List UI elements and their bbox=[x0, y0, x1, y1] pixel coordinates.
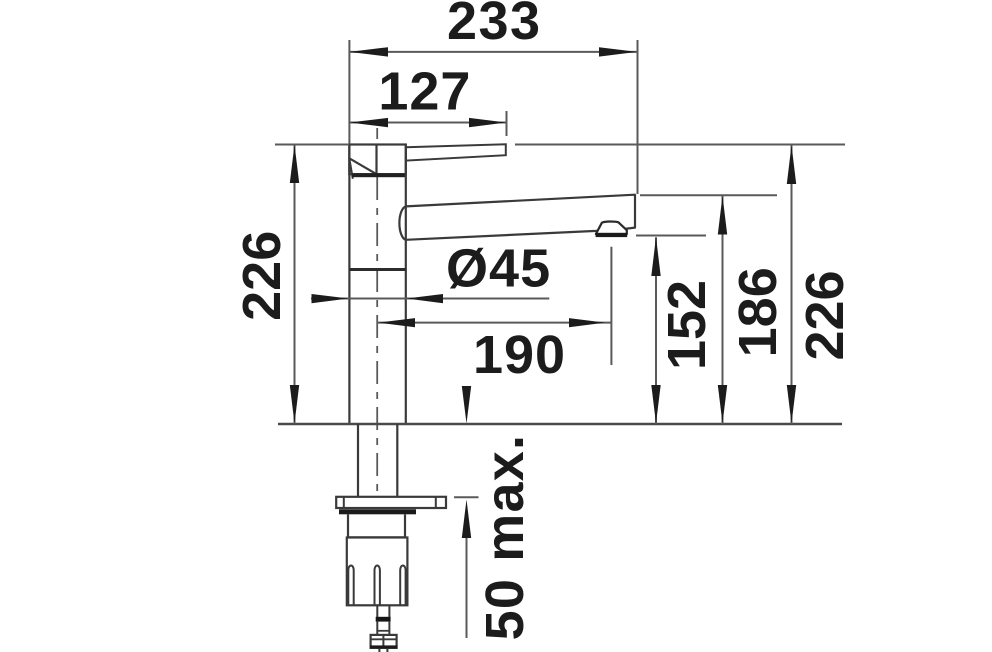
svg-text:127: 127 bbox=[378, 61, 471, 121]
svg-text:Ø45: Ø45 bbox=[446, 239, 551, 299]
svg-text:186: 186 bbox=[728, 267, 788, 357]
svg-text:226: 226 bbox=[795, 270, 855, 360]
svg-text:152: 152 bbox=[657, 280, 717, 370]
svg-text:190: 190 bbox=[473, 325, 566, 385]
svg-text:226: 226 bbox=[232, 231, 292, 321]
svg-text:50 max.: 50 max. bbox=[475, 434, 535, 641]
svg-text:233: 233 bbox=[447, 0, 542, 51]
